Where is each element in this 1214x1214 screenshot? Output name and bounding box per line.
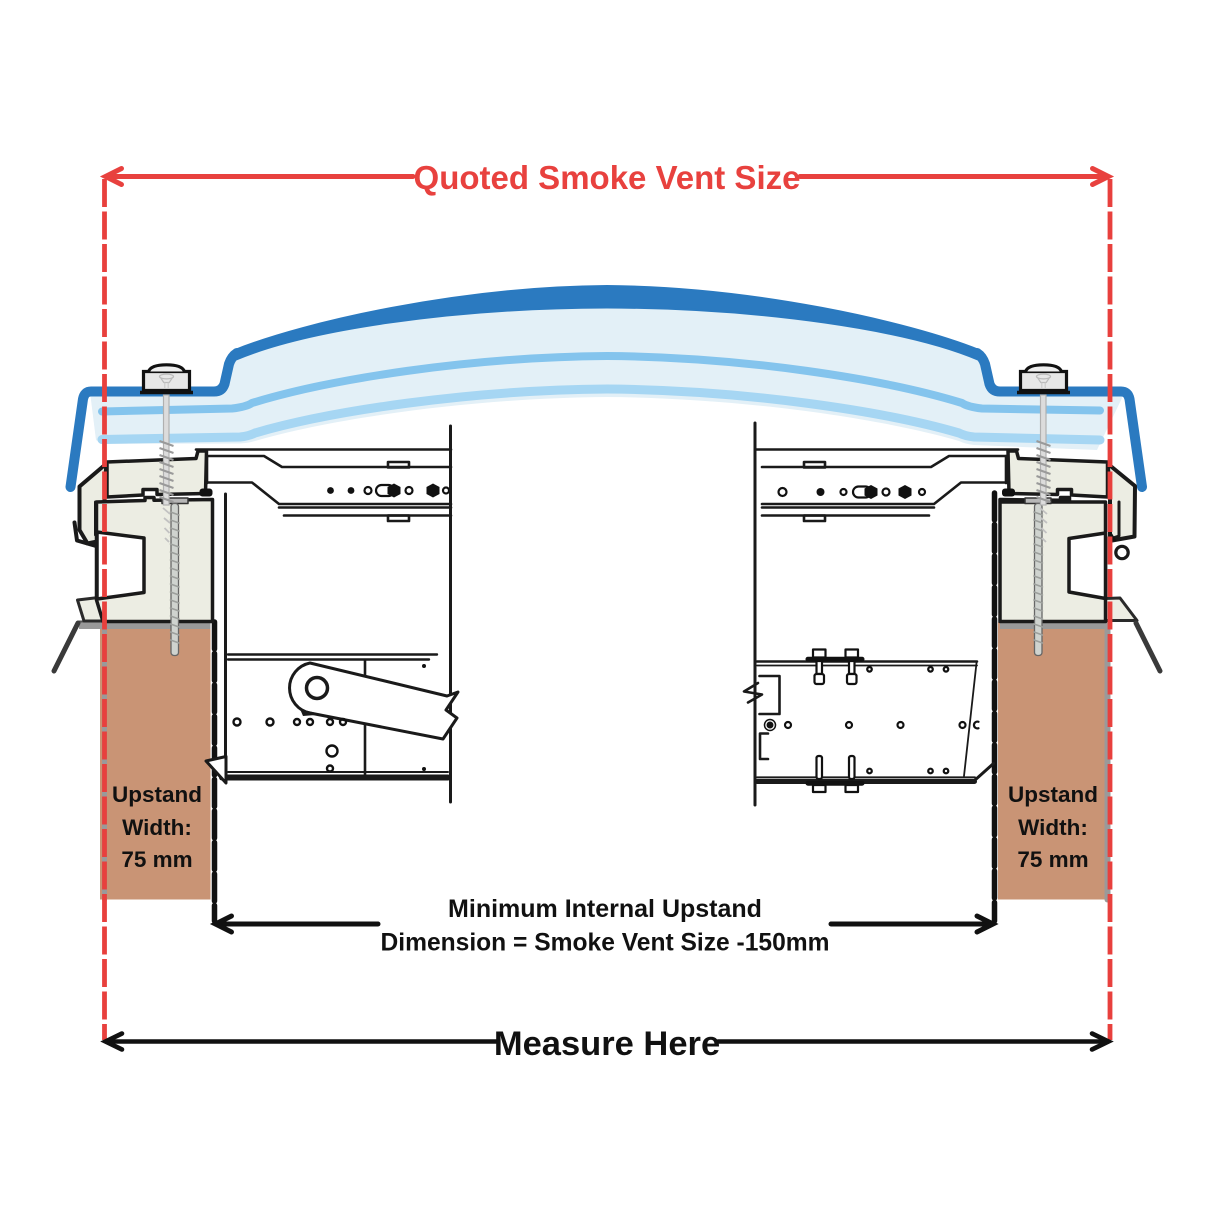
- svg-text:75 mm: 75 mm: [121, 847, 192, 872]
- svg-text:Quoted Smoke Vent Size: Quoted Smoke Vent Size: [414, 159, 801, 196]
- svg-text:75 mm: 75 mm: [1017, 847, 1088, 872]
- svg-text:Upstand: Upstand: [1008, 782, 1098, 807]
- svg-text:Upstand: Upstand: [112, 782, 202, 807]
- svg-text:Minimum Internal Upstand: Minimum Internal Upstand: [448, 895, 762, 923]
- svg-text:Width:: Width:: [1018, 815, 1088, 840]
- svg-text:Measure Here: Measure Here: [494, 1025, 720, 1063]
- svg-text:Width:: Width:: [122, 815, 192, 840]
- svg-text:Dimension = Smoke Vent Size -1: Dimension = Smoke Vent Size -150mm: [380, 930, 829, 957]
